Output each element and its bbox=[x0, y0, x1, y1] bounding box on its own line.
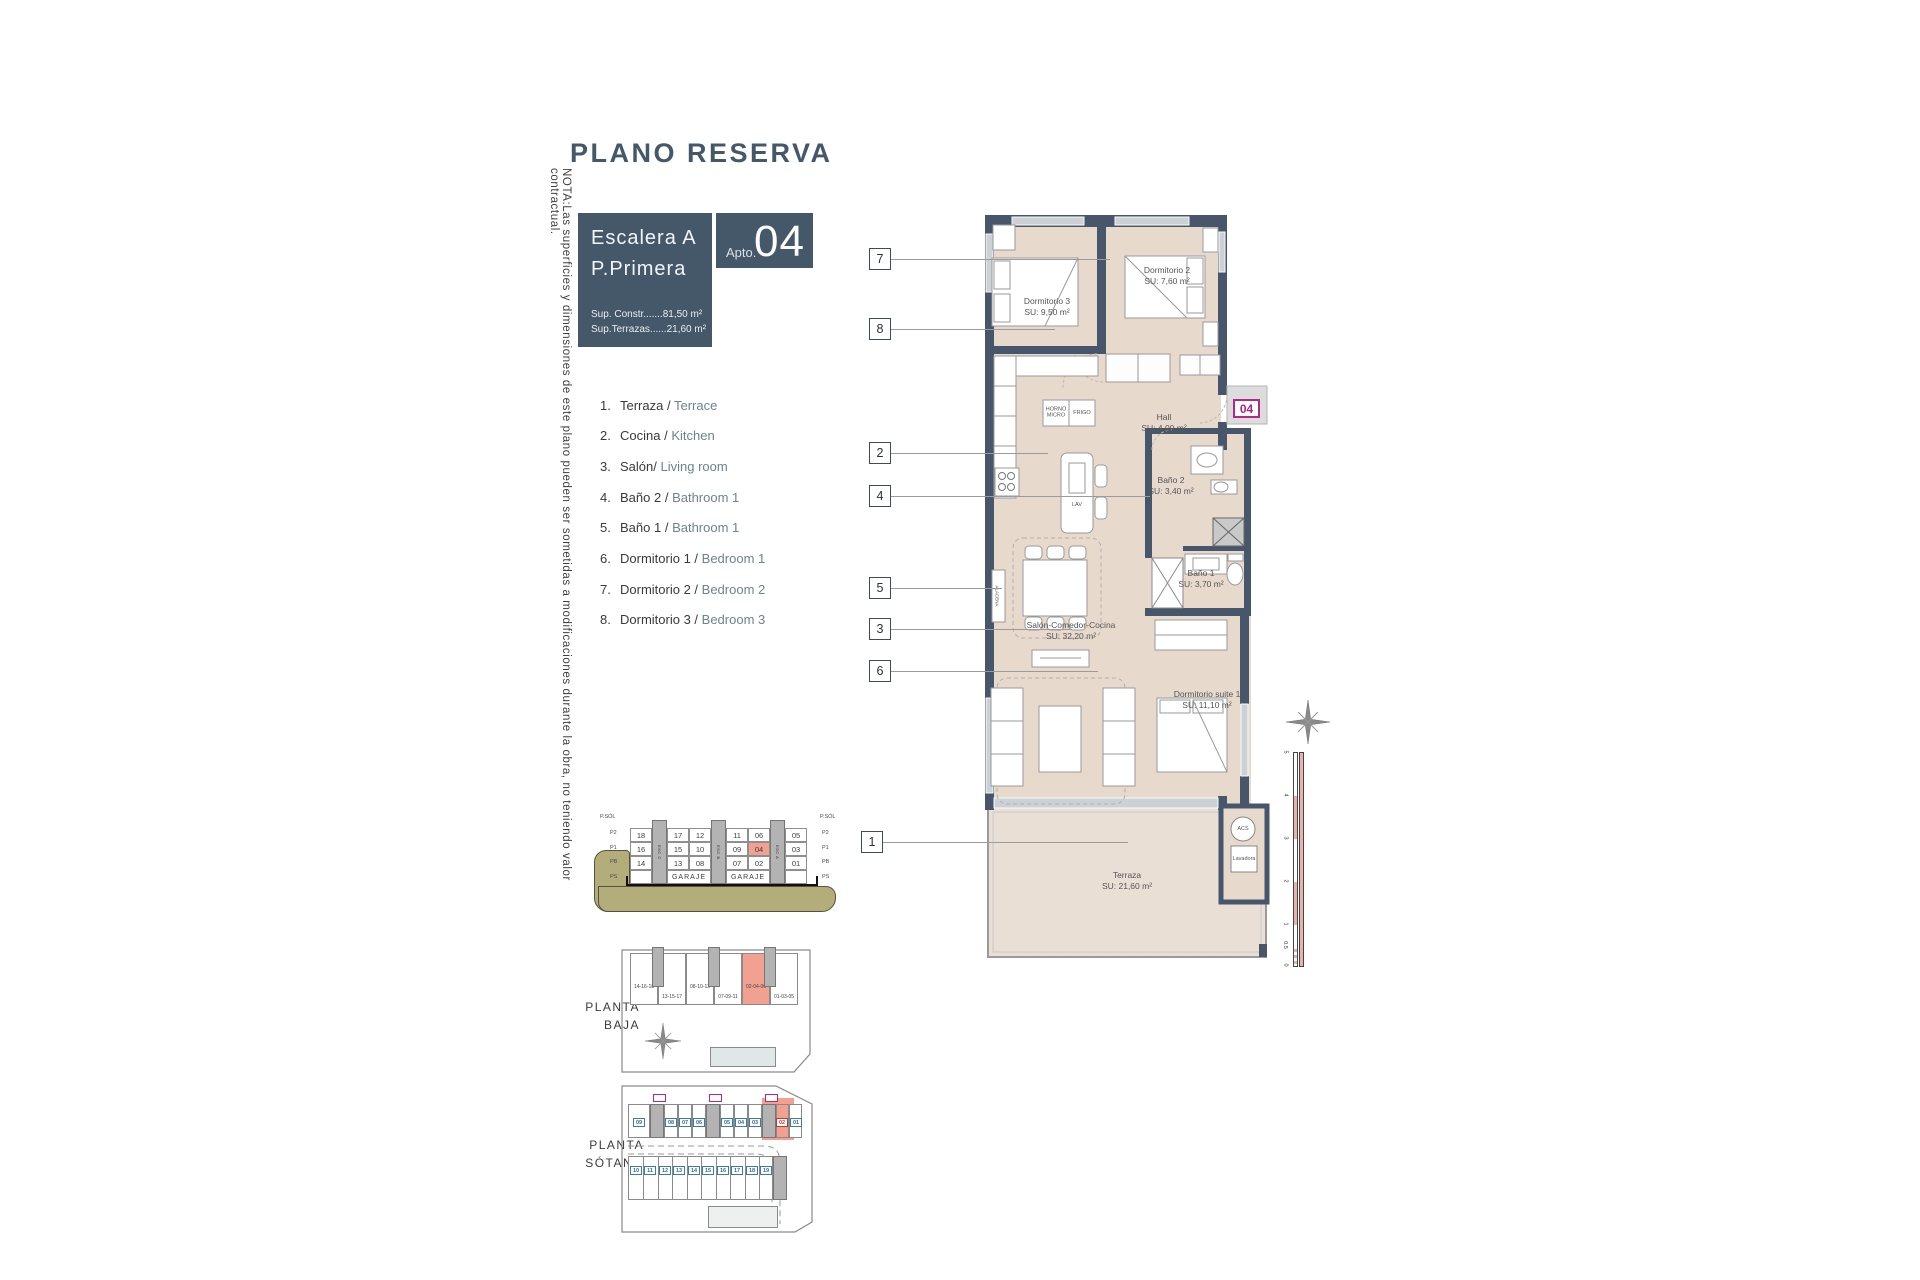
shower bbox=[1213, 518, 1244, 546]
floor-label-right: P.SÓL bbox=[820, 814, 836, 820]
label-dormitorio2: Dormitorio 2SU: 7,60 m² bbox=[1144, 265, 1190, 287]
scale-2: 2 bbox=[1283, 879, 1289, 882]
utility-closet bbox=[1221, 806, 1267, 902]
label-dormitorio3: Dormitorio 3SU: 9,50 m² bbox=[1024, 296, 1070, 318]
tv-bench bbox=[1032, 650, 1089, 667]
entry-apartment-badge: 04 bbox=[1233, 399, 1260, 418]
baja-pool bbox=[710, 1047, 776, 1067]
legend-item-dorm2: 7.Dormitorio 2 / Bedroom 2 bbox=[600, 582, 765, 597]
apartment-number-box: Apto. 04 bbox=[716, 213, 813, 268]
section-cell: 15 bbox=[667, 842, 689, 856]
sotano-stair bbox=[650, 1104, 664, 1138]
section-cell-empty bbox=[630, 870, 652, 884]
legend-item-terraza: 1.Terraza / Terrace bbox=[600, 398, 717, 413]
compass-rose-plan bbox=[1286, 700, 1330, 744]
label-acs: ACS bbox=[1237, 826, 1248, 832]
callout-3: 3 bbox=[869, 618, 891, 640]
compass-rose-baja bbox=[645, 1023, 681, 1059]
legend-item-dorm3: 8.Dormitorio 3 / Bedroom 3 bbox=[600, 612, 765, 627]
scale-bar-left bbox=[1293, 752, 1298, 967]
suite-wardrobe bbox=[1155, 620, 1227, 650]
leader-line-6 bbox=[891, 671, 1098, 672]
section-cell: 02 bbox=[748, 856, 770, 870]
callout-8: 8 bbox=[869, 318, 891, 340]
section-cell-highlight-04: 04 bbox=[748, 842, 770, 856]
sotano-tag-12: 12 bbox=[659, 1166, 671, 1175]
sotano-tag-09: 09 bbox=[633, 1118, 645, 1127]
sotano-parking-row bbox=[628, 1156, 773, 1200]
sotano-tag-08: 08 bbox=[665, 1118, 677, 1127]
section-cell: 14 bbox=[630, 856, 652, 870]
sotano-tag-17: 17 bbox=[731, 1166, 743, 1175]
label-terraza: TerrazaSU: 21,60 m² bbox=[1102, 870, 1152, 892]
sotano-tag-03: 03 bbox=[749, 1118, 761, 1127]
sotano-stair-tag bbox=[653, 1094, 666, 1102]
staircase-info-box: Escalera A P.Primera Sup. Constr.......8… bbox=[578, 213, 712, 347]
page-title: PLANO RESERVA bbox=[570, 138, 833, 169]
floor-label-left: P.SÓL bbox=[600, 814, 616, 820]
sotano-stair bbox=[706, 1104, 720, 1138]
section-cell: 06 bbox=[748, 828, 770, 842]
label-lavadora: Lavadora bbox=[1233, 856, 1256, 862]
label-horno-micro: HORNO MICRO bbox=[1044, 407, 1068, 420]
floor-label-right: P2 bbox=[822, 830, 829, 836]
sotano-stair bbox=[762, 1104, 776, 1138]
section-cell: 10 bbox=[689, 842, 711, 856]
sotano-tag-19: 19 bbox=[760, 1166, 772, 1175]
floor-label-left: PB bbox=[610, 859, 617, 865]
legend-item-bano2: 4.Baño 2 / Bathroom 1 bbox=[600, 490, 739, 505]
sotano-tag-13: 13 bbox=[673, 1166, 685, 1175]
label-frigo: FRIGO bbox=[1073, 410, 1090, 416]
label-salon: Salón-Comedor-CocinaSU: 32,20 m² bbox=[1027, 620, 1116, 642]
section-cell-empty bbox=[785, 870, 807, 884]
terrace-surface: Sup.Terrazas......21,60 m² bbox=[591, 323, 706, 338]
sotano-stair-tag bbox=[709, 1094, 722, 1102]
section-cell: 08 bbox=[689, 856, 711, 870]
legend-item-dorm1: 6.Dormitorio 1 / Bedroom 1 bbox=[600, 551, 765, 566]
section-cell: 17 bbox=[667, 828, 689, 842]
scale-bar-right bbox=[1299, 752, 1304, 967]
callout-7: 7 bbox=[869, 248, 891, 270]
section-stair-a: ESC A bbox=[770, 820, 785, 884]
apto-number: 04 bbox=[754, 217, 805, 267]
sotano-tag-11: 11 bbox=[644, 1166, 656, 1175]
callout-6: 6 bbox=[869, 660, 891, 682]
section-cell: 18 bbox=[630, 828, 652, 842]
sotano-stair-tag bbox=[765, 1094, 778, 1102]
sotano-tag-06: 06 bbox=[693, 1118, 705, 1127]
leader-line-7 bbox=[891, 259, 1110, 260]
section-stair-c: ESC C bbox=[652, 820, 667, 884]
scale-3: 3 bbox=[1283, 836, 1289, 839]
garage-cell: GARAJE bbox=[726, 870, 770, 884]
sotano-tag-15: 15 bbox=[702, 1166, 714, 1175]
section-cell: 16 bbox=[630, 842, 652, 856]
sotano-tag-05: 05 bbox=[721, 1118, 733, 1127]
disclaimer-note: NOTA:Las superficies y dimensiones de es… bbox=[548, 168, 572, 888]
callout-5: 5 bbox=[869, 577, 891, 599]
leader-line-4 bbox=[891, 496, 1150, 497]
floor-label-right: PB bbox=[822, 859, 829, 865]
terrain-main bbox=[598, 886, 836, 912]
callout-2: 2 bbox=[869, 442, 891, 464]
dining-table bbox=[1023, 546, 1087, 630]
floor-label-left: P1 bbox=[610, 845, 617, 851]
sotano-tag-14: 14 bbox=[688, 1166, 700, 1175]
sotano-tag-10: 10 bbox=[630, 1166, 642, 1175]
sotano-tag-18: 18 bbox=[746, 1166, 758, 1175]
apto-prefix: Apto. bbox=[726, 245, 756, 260]
scale-1: 1 bbox=[1283, 922, 1289, 925]
floor-plan-drawing bbox=[985, 210, 1305, 970]
floor-label-right: P1 bbox=[822, 845, 829, 851]
section-cell: 07 bbox=[726, 856, 748, 870]
section-cell: 12 bbox=[689, 828, 711, 842]
leader-line-1 bbox=[883, 842, 1128, 843]
callout-1: 1 bbox=[861, 831, 883, 853]
scale-5: 5 bbox=[1283, 750, 1289, 753]
sotano-tag-01: 01 bbox=[790, 1118, 802, 1127]
sotano-ramp bbox=[708, 1206, 778, 1228]
section-cell: 05 bbox=[785, 828, 807, 842]
sotano-tag-16: 16 bbox=[717, 1166, 729, 1175]
floor-label-right: PS bbox=[822, 874, 829, 880]
legend-item-cocina: 2.Cocina / Kitchen bbox=[600, 428, 715, 443]
callout-4: 4 bbox=[869, 485, 891, 507]
plano-reserva-page: NOTA:Las superficies y dimensiones de es… bbox=[0, 0, 1920, 1280]
label-hall: HallSU: 4,00 m² bbox=[1141, 412, 1186, 434]
baja-stair-stub bbox=[764, 947, 776, 987]
floor-name: P.Primera bbox=[591, 254, 712, 285]
garage-cell: GARAJE bbox=[667, 870, 711, 884]
scale-4: 4 bbox=[1283, 793, 1289, 796]
section-cell: 11 bbox=[726, 828, 748, 842]
baja-stair-stub bbox=[652, 947, 664, 987]
section-cell: 03 bbox=[785, 842, 807, 856]
sotano-tag-02-highlight: 02 bbox=[776, 1118, 788, 1127]
leader-line-2 bbox=[891, 453, 1048, 454]
built-surface: Sup. Constr.......81,50 m² bbox=[591, 308, 706, 323]
leader-line-5 bbox=[891, 588, 1002, 589]
staircase-name: Escalera A bbox=[591, 223, 712, 254]
scale-05: 0.5 bbox=[1282, 941, 1288, 949]
leader-line-8 bbox=[891, 329, 1055, 330]
section-cell: 01 bbox=[785, 856, 807, 870]
sotano-tag-04: 04 bbox=[735, 1118, 747, 1127]
label-lav: LAV bbox=[1072, 502, 1082, 508]
sotano-stair-bottom bbox=[773, 1156, 787, 1200]
legend-item-bano1: 5.Baño 1 / Bathroom 1 bbox=[600, 520, 739, 535]
sotano-tag-07: 07 bbox=[679, 1118, 691, 1127]
leader-line-3 bbox=[891, 629, 1072, 630]
legend-item-salon: 3.Salón/ Living room bbox=[600, 459, 728, 474]
floor-label-left: P2 bbox=[610, 830, 617, 836]
label-bano1: Baño 1SU: 3,70 m² bbox=[1178, 568, 1223, 590]
section-cell: 13 bbox=[667, 856, 689, 870]
section-stair-b: ESC B bbox=[711, 820, 726, 884]
scale-0: 0 bbox=[1283, 963, 1289, 966]
ground-line bbox=[626, 884, 818, 886]
label-suite: Dormitorio suite 1SU: 11,10 m² bbox=[1174, 689, 1241, 711]
building-section-diagram: ESC C ESC B ESC A 18 17 12 11 06 05 16 1… bbox=[580, 810, 840, 920]
section-cell: 09 bbox=[726, 842, 748, 856]
label-bano2: Baño 2SU: 3,40 m² bbox=[1148, 475, 1193, 497]
floor-label-left: PS bbox=[610, 874, 617, 880]
baja-stair-stub bbox=[708, 947, 720, 987]
